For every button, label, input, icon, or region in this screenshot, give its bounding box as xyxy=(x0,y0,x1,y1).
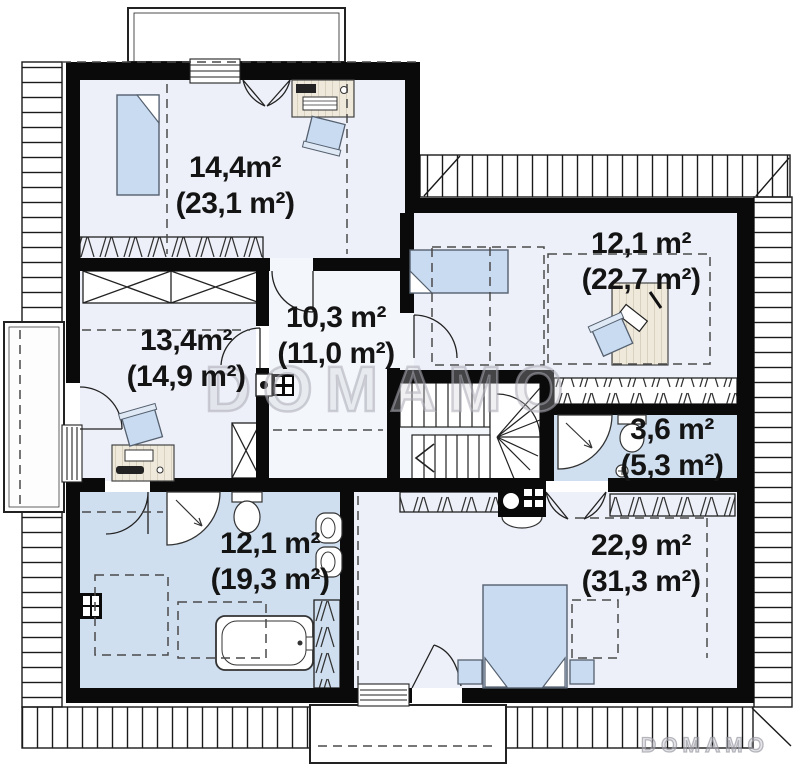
room-area-total: (19,3 m²) xyxy=(211,562,330,598)
desk-top-left xyxy=(292,80,354,117)
bed-single-top-left xyxy=(117,95,159,195)
floor-plan: DOMAMO 14,4m² (23,1 m²) 12,1 m² (22,7 m²… xyxy=(0,0,800,767)
room-area-total: (14,9 m²) xyxy=(127,359,246,395)
room-label-bathroom-main: 12,1 m² (19,3 m²) xyxy=(211,526,330,598)
room-area-total: (5,3 m²) xyxy=(621,448,724,484)
room-label-room-left: 13,4m² (14,9 m²) xyxy=(127,323,246,395)
nightstand-right xyxy=(570,660,594,684)
room-label-bedroom-bottom-right: 22,9 m² (31,3 m²) xyxy=(582,528,701,600)
room-area: 13,4m² xyxy=(127,323,246,359)
balcony xyxy=(4,322,64,512)
room-area-total: (11,0 m²) xyxy=(277,336,394,372)
room-area-total: (22,7 m²) xyxy=(582,262,701,298)
top-dormer xyxy=(128,8,345,62)
room-area: 22,9 m² xyxy=(582,528,701,564)
bottom-dormer xyxy=(310,705,506,763)
room-area: 3,6 m² xyxy=(621,412,724,448)
bed-double xyxy=(483,585,567,688)
room-area: 10,3 m² xyxy=(277,300,394,336)
room-area: 12,1 m² xyxy=(211,526,330,562)
room-area: 14,4m² xyxy=(176,150,295,186)
desk-left xyxy=(112,445,174,481)
room-area: 12,1 m² xyxy=(582,226,701,262)
brand-logo: DOMAMO xyxy=(641,734,769,758)
bed-single-top-right xyxy=(410,250,508,293)
bathtub xyxy=(216,616,313,670)
room-area-total: (31,3 m²) xyxy=(582,564,701,600)
room-label-bathroom-small: 3,6 m² (5,3 m²) xyxy=(621,412,724,484)
room-label-bedroom-top-left: 14,4m² (23,1 m²) xyxy=(176,150,295,222)
chimney-block xyxy=(256,374,294,396)
floor-plan-drawing xyxy=(0,0,800,767)
nightstand-left xyxy=(458,660,482,684)
washer-block xyxy=(498,485,546,528)
wall-window-grid xyxy=(80,593,102,619)
room-label-bedroom-top-right: 12,1 m² (22,7 m²) xyxy=(582,226,701,298)
room-area-total: (23,1 m²) xyxy=(176,186,295,222)
room-label-hall: 10,3 m² (11,0 m²) xyxy=(277,300,394,372)
